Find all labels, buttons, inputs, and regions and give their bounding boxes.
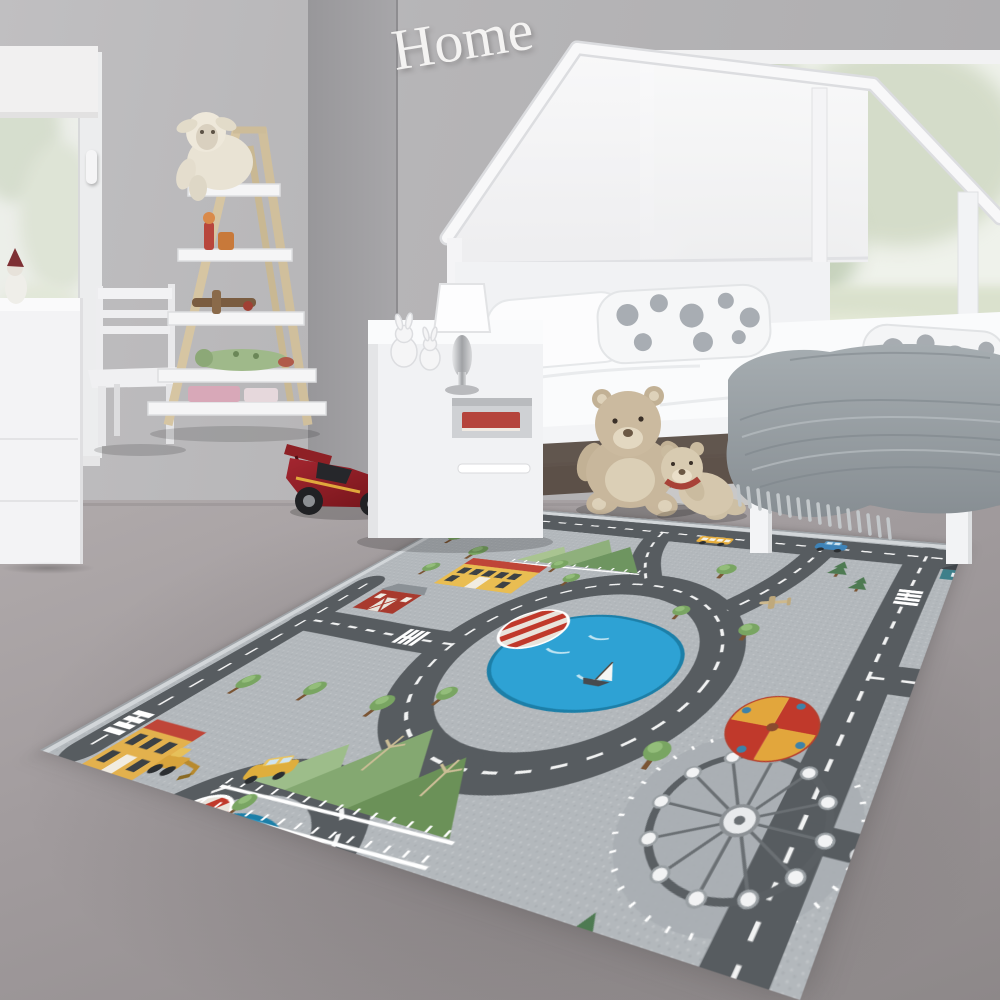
front-overlay	[0, 0, 1000, 1000]
lamp-shade	[434, 284, 490, 332]
room-scene: Home	[0, 0, 1000, 1000]
gray-blanket	[727, 344, 1000, 538]
lamp-base	[452, 335, 472, 377]
drawer-handle	[458, 464, 530, 473]
